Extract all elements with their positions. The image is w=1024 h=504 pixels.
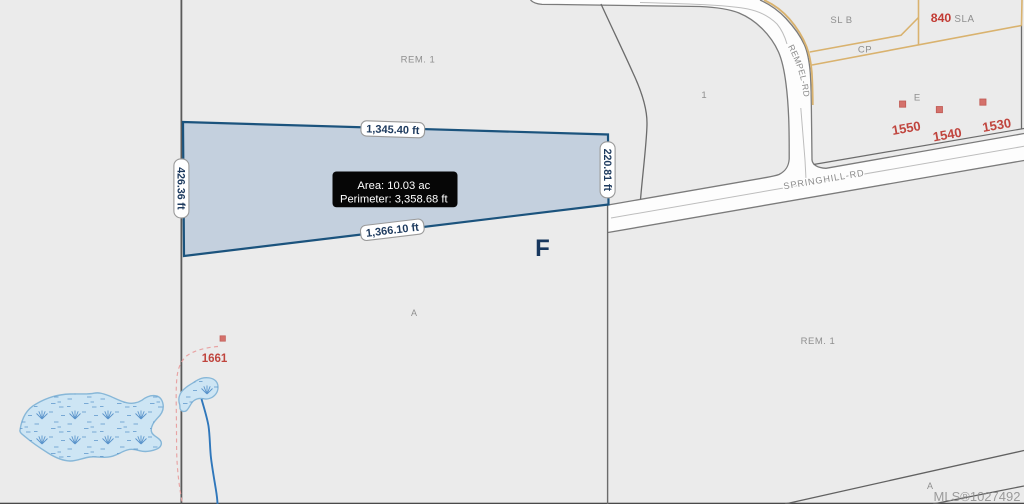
svg-text:E: E	[914, 93, 920, 104]
svg-text:F: F	[535, 235, 550, 262]
svg-text:Perimeter: 3,358.68 ft: Perimeter: 3,358.68 ft	[340, 194, 448, 206]
svg-text:REM. 1: REM. 1	[801, 336, 836, 347]
svg-text:1661: 1661	[202, 353, 228, 365]
svg-text:SL B: SL B	[830, 15, 852, 26]
svg-text:840: 840	[931, 11, 952, 25]
svg-text:CP: CP	[858, 44, 872, 55]
svg-text:426.36 ft: 426.36 ft	[175, 167, 187, 210]
svg-text:Area: 10.03 ac: Area: 10.03 ac	[357, 180, 430, 192]
svg-text:SLA: SLA	[954, 14, 974, 25]
svg-text:REM. 1: REM. 1	[401, 55, 436, 66]
svg-text:220.81 ft: 220.81 ft	[601, 149, 613, 192]
svg-text:A: A	[411, 308, 417, 318]
svg-text:MLS®1027492: MLS®1027492	[934, 489, 1021, 504]
svg-text:1,345.40 ft: 1,345.40 ft	[366, 123, 420, 137]
svg-text:1: 1	[701, 90, 706, 101]
svg-text:A: A	[927, 481, 933, 491]
